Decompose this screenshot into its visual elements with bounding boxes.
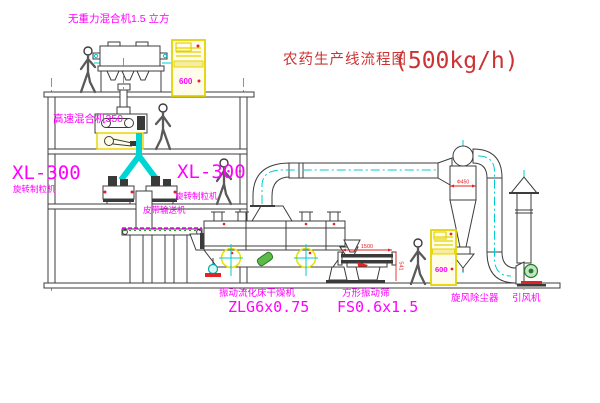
ground-line [44,283,560,288]
process-flow-diagram: 600 [0,0,600,403]
cabinet-display: 600 [179,77,193,86]
exhaust-duct [250,163,456,206]
cyclone-diameter-dimension: Φ450 [457,180,470,186]
conveyor-support-column [152,235,165,283]
diagram-title: 农药生产线流程图 (500kg/h) [283,48,519,74]
control-cabinet-1: 600 [172,40,205,96]
label-dryer-model: ZLG6x0.75 [228,298,309,316]
floor-slab-top [44,92,254,97]
vibration-motor-icon [209,265,218,274]
vibrating-screen: 1500 541 [338,240,404,283]
granulator-left [103,176,134,204]
person-figure-second-floor [156,104,170,149]
diagram-svg: 600 [0,0,600,403]
label-xl300-left-model: XL-300 [12,162,81,184]
title-text: 农药生产线流程图 [283,51,407,68]
label-high-speed-mixer: 高速混合机350 [53,112,123,125]
label-cyclone: 旋风除尘器 [451,292,499,304]
person-figure-ground [411,239,425,284]
cyclone-outlet-pipe [473,149,516,283]
conveyor-support-column [130,235,143,283]
indicator-dot-icon [198,80,201,83]
dryer-exhaust-hood [252,206,292,221]
induced-draft-fan [516,262,546,287]
label-fan: 引风机 [512,292,541,304]
label-xl300-mid-model: XL-300 [177,161,246,183]
indicator-dot-icon [451,268,454,271]
label-xl300-mid-name: 旋转制粒机 [175,191,218,201]
cabinet-display: 600 [435,265,448,274]
indicator-dot-icon [104,191,107,194]
fluid-bed-dryer [190,206,358,283]
floor-slab-2 [48,149,247,154]
indicator-dot-icon [450,233,453,236]
title-capacity: (500kg/h) [394,48,519,74]
label-screen-model: FS0.6x1.5 [337,298,418,316]
screen-height-dimension: 541 [398,261,404,270]
control-cabinet-2: 600 [431,230,456,285]
label-belt-conveyor: 皮带输送机 [143,205,186,215]
label-xl300-left-name: 旋转制粒机 [13,184,56,194]
screen-length-dimension: 1500 [361,244,373,250]
indicator-dot-icon [131,191,134,194]
gravity-free-mixer [93,42,172,92]
indicator-dot-icon [197,45,200,48]
conveyor-support-column [174,235,187,283]
label-gravity-mixer: 无重力混合机1.5 立方 [68,12,170,25]
belt-conveyor [122,228,202,283]
stack-rain-cap [511,177,537,193]
